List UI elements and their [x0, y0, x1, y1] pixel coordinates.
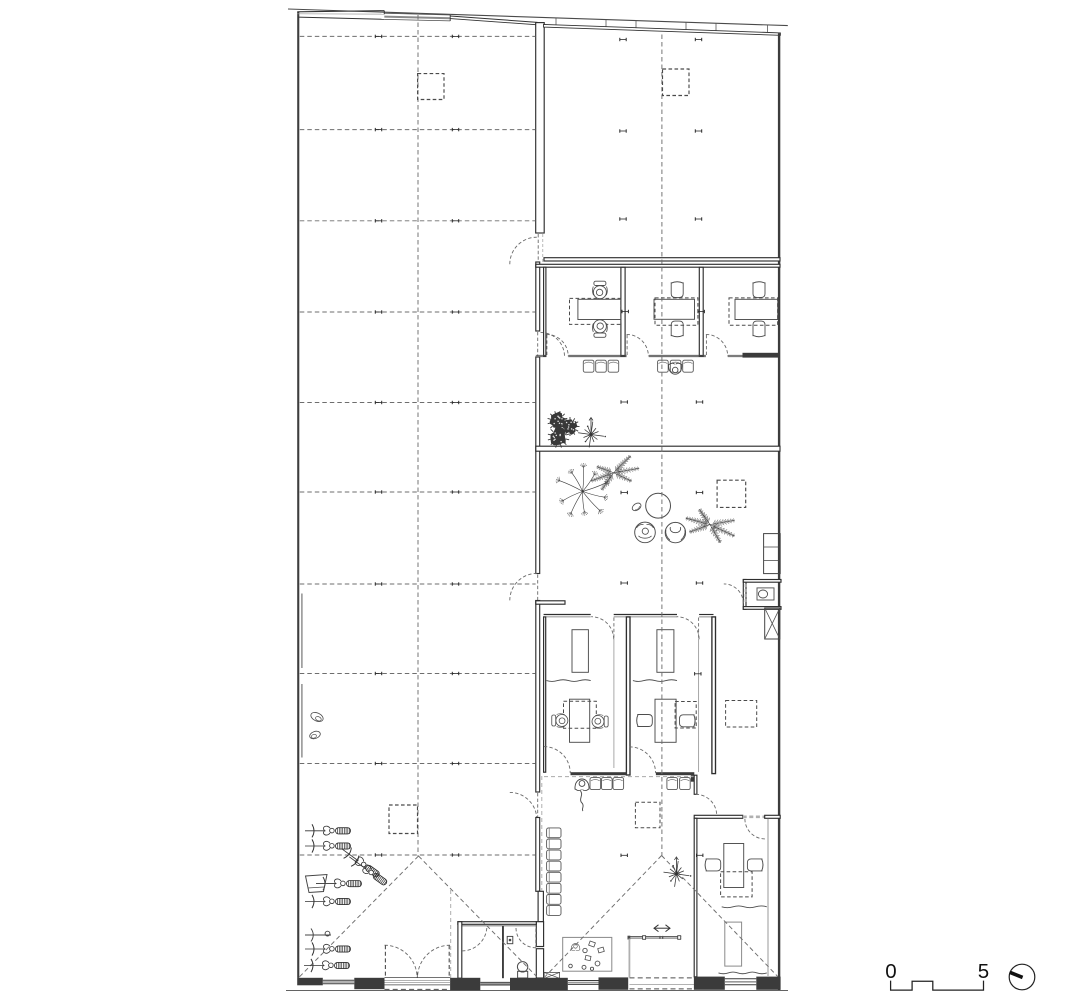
svg-text:5: 5	[978, 960, 989, 983]
svg-text:0: 0	[885, 960, 896, 983]
